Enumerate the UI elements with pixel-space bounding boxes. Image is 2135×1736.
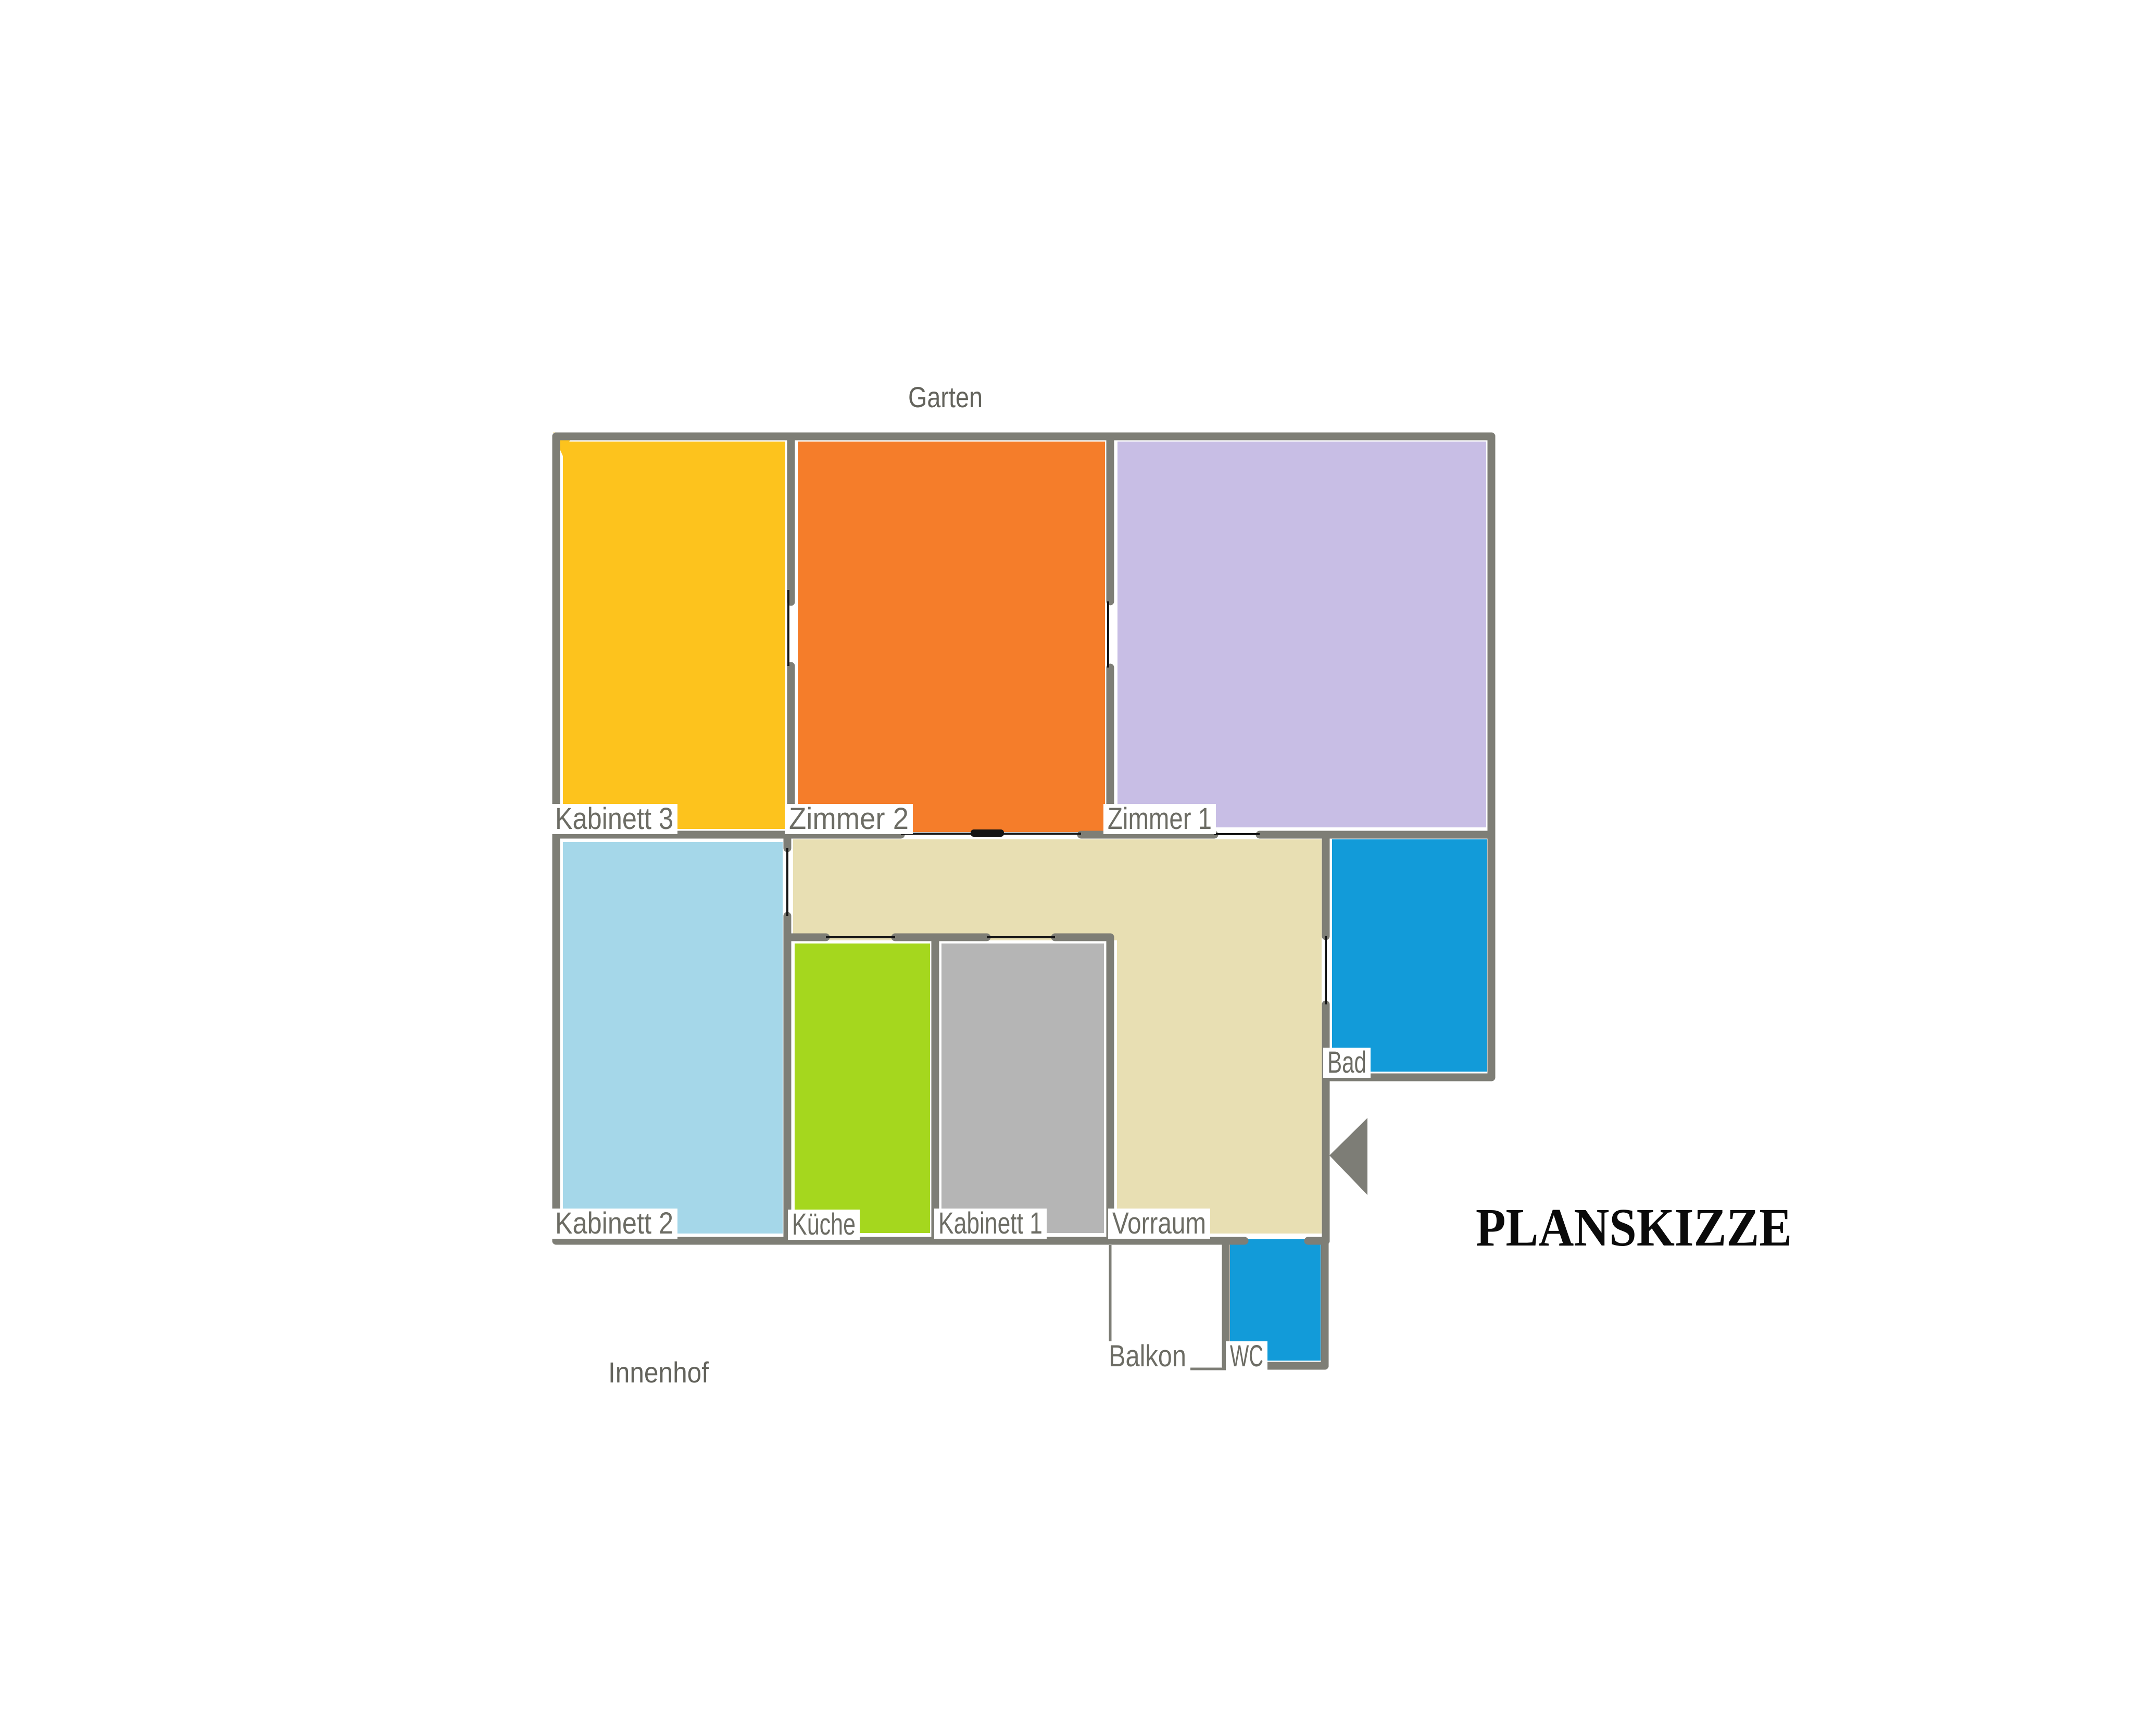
svg-text:Kabinett 3: Kabinett 3	[555, 802, 673, 836]
svg-text:Kabinett 2: Kabinett 2	[555, 1206, 673, 1240]
svg-text:Garten: Garten	[908, 381, 983, 413]
svg-text:Küche: Küche	[792, 1207, 856, 1241]
svg-text:PLANSKIZZE: PLANSKIZZE	[1476, 1198, 1792, 1257]
svg-text:Innenhof: Innenhof	[608, 1356, 709, 1389]
svg-text:Zimmer 2: Zimmer 2	[789, 802, 909, 836]
svg-text:WC: WC	[1230, 1339, 1263, 1373]
svg-text:Bad: Bad	[1327, 1046, 1366, 1079]
svg-text:Vorraum: Vorraum	[1112, 1206, 1206, 1240]
svg-text:Kabinett 1: Kabinett 1	[938, 1206, 1043, 1240]
svg-text:Balkon: Balkon	[1109, 1339, 1186, 1373]
svg-text:Zimmer 1: Zimmer 1	[1108, 802, 1212, 836]
